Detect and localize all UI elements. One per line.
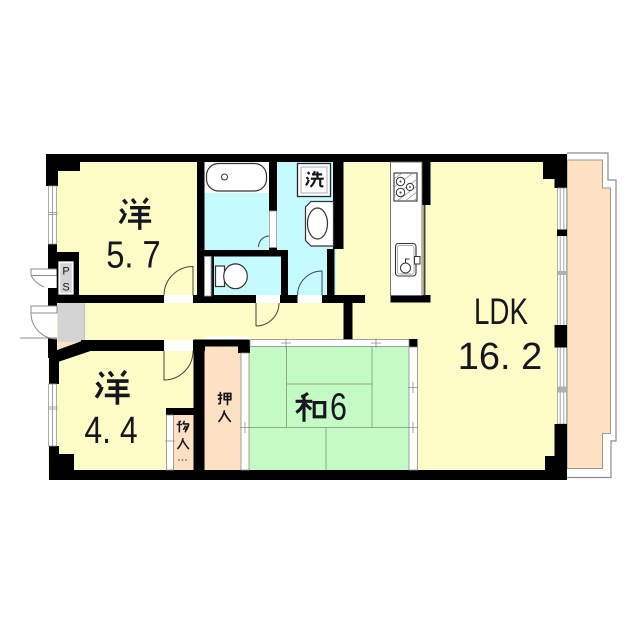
svg-text:4. 4: 4. 4 <box>84 409 137 451</box>
svg-text:LDK: LDK <box>474 290 528 332</box>
svg-text:6: 6 <box>330 386 347 428</box>
svg-text:P: P <box>62 266 69 278</box>
svg-text:5. 7: 5. 7 <box>106 233 160 276</box>
svg-text:16. 2: 16. 2 <box>458 336 543 378</box>
svg-text:S: S <box>62 282 69 294</box>
